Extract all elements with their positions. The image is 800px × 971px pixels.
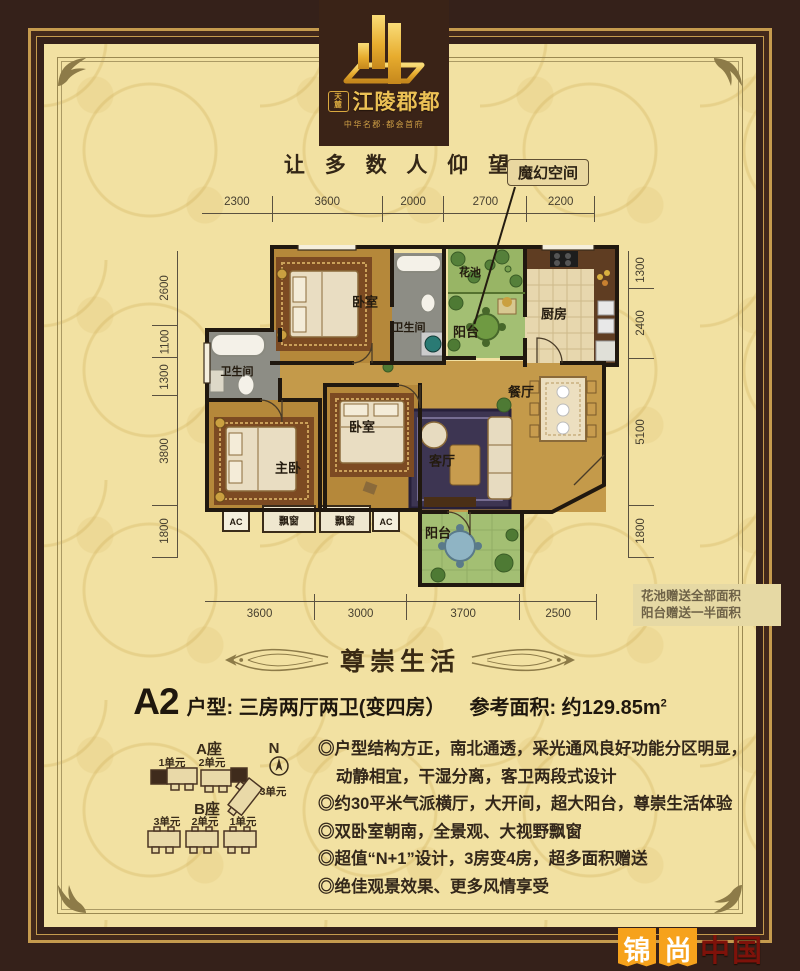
feature-item: ◎超值“N+1”设计，3房变4房，超多面积赠送	[318, 846, 748, 874]
b-unit1-label: 1单元	[230, 814, 257, 829]
feature-list: ◎户型结构方正，南北通透，采光通风良好功能分区明显，动静相宜，干湿分离，客卫两段…	[318, 736, 748, 901]
room-label-bath-left: 卫生间	[221, 363, 254, 379]
dimensions-bottom: 3600 3000 3700 2500	[205, 594, 597, 620]
feature-item: ◎户型结构方正，南北通透，采光通风良好功能分区明显，动静相宜，干湿分离，客卫两段…	[318, 736, 748, 791]
bonus-area-note: 花池赠送全部面积 阳台赠送一半面积	[633, 584, 781, 626]
dim-segment: 3700	[407, 594, 520, 620]
tagline: 让 多 数 人 仰 望	[0, 149, 800, 179]
dim-segment: 2500	[520, 594, 597, 620]
b-unit3-label: 3单元	[154, 814, 181, 829]
feature-item: ◎绝佳观景效果、更多风情享受	[318, 874, 748, 902]
room-label-balcony-top: 阳台	[453, 322, 479, 341]
dim-segment: 2000	[383, 196, 445, 222]
corner-flourish-icon	[57, 57, 87, 87]
note-line-2: 阳台赠送一半面积	[641, 605, 773, 622]
room-label-living: 客厅	[429, 451, 455, 470]
feature-item: ◎双卧室朝南，全景观、大视野飘窗	[318, 819, 748, 847]
area-superscript: 2	[661, 697, 667, 709]
watermark-box-1: 锦	[618, 928, 656, 968]
label-ac-1: AC	[230, 517, 243, 527]
brand-seal: 天 麓	[328, 91, 349, 112]
seal-char-bottom: 麓	[334, 101, 342, 109]
a-unit1-label: 1单元	[159, 755, 186, 770]
building-logo-icon	[338, 9, 430, 85]
label-ac-2: AC	[380, 517, 393, 527]
room-label-balcony-bottom: 阳台	[425, 523, 451, 542]
dimensions-top: 2300 3600 2000 2700 2200	[202, 196, 595, 222]
feature-item: ◎约30平米气派横厅，大开间，超大阳台，尊崇生活体验	[318, 791, 748, 819]
banner-ornament-left-icon	[225, 645, 330, 675]
label-bay-window-1: 飘窗	[279, 513, 299, 528]
unit-description: 户型: 三房两厅两卫(变四房）	[187, 691, 446, 720]
room-label-bath-mid: 卫生间	[393, 319, 426, 335]
dim-segment: 3000	[315, 594, 407, 620]
dim-segment: 3600	[205, 594, 315, 620]
dim-segment: 1300	[152, 358, 178, 396]
unit-title-row: A2 户型: 三房两厅两卫(变四房） 参考面积: 约129.85m2	[0, 681, 800, 723]
label-bay-window-2: 飘窗	[335, 513, 355, 528]
a-unit3-label: 3单元	[260, 784, 287, 799]
room-label-dining: 餐厅	[508, 382, 534, 401]
room-label-bedroom-top: 卧室	[352, 292, 378, 311]
dim-segment: 3800	[152, 396, 178, 505]
callout-magic-space: 魔幻空间	[507, 159, 589, 186]
unit-code: A2	[133, 681, 178, 723]
dim-segment: 2700	[444, 196, 527, 222]
floor-plan-drawing	[202, 245, 642, 590]
compass-n-label: N	[269, 740, 280, 757]
compass-icon	[270, 757, 288, 775]
poster-page: 天 麓 江陵郡都 中华名郡·都会首府 让 多 数 人 仰 望 魔幻空间 2300…	[0, 0, 800, 971]
unit-area: 参考面积: 约129.85m2	[469, 691, 666, 720]
corner-flourish-icon	[57, 884, 87, 914]
watermark-suffix: 中国	[700, 926, 764, 970]
brand-subtitle: 中华名郡·都会首府	[344, 119, 424, 130]
brand-name: 江陵郡都	[353, 86, 441, 116]
brand-row: 天 麓 江陵郡都	[328, 86, 441, 116]
room-label-master: 主卧	[275, 458, 301, 477]
dim-segment: 1800	[152, 506, 178, 558]
watermark-box-2: 尚	[659, 928, 697, 968]
room-label-bedroom2: 卧室	[349, 417, 375, 436]
section-banner: 尊崇生活	[0, 642, 800, 678]
dim-segment: 1100	[152, 326, 178, 358]
corner-flourish-icon	[713, 57, 743, 87]
dimensions-left: 2600 1100 1300 3800 1800	[152, 251, 178, 558]
dining-furniture	[530, 377, 596, 441]
watermark: 锦 尚 中国	[618, 926, 764, 970]
banner-ornament-right-icon	[470, 645, 575, 675]
logo-banner: 天 麓 江陵郡都 中华名郡·都会首府	[319, 0, 449, 146]
b-unit2-label: 2单元	[192, 814, 219, 829]
dim-segment: 3600	[273, 196, 383, 222]
note-line-1: 花池赠送全部面积	[641, 588, 773, 605]
room-label-flower-pool: 花池	[459, 264, 481, 280]
room-label-kitchen: 厨房	[541, 304, 567, 323]
banner-text: 尊崇生活	[340, 642, 460, 678]
dim-segment: 2300	[202, 196, 273, 222]
dim-segment: 2200	[527, 196, 595, 222]
dim-segment: 2600	[152, 251, 178, 326]
a-unit2-label: 2单元	[199, 755, 226, 770]
site-plan: A座 1单元 2单元 3单元 B座 3单元 2单元 1单元 N	[133, 736, 313, 896]
